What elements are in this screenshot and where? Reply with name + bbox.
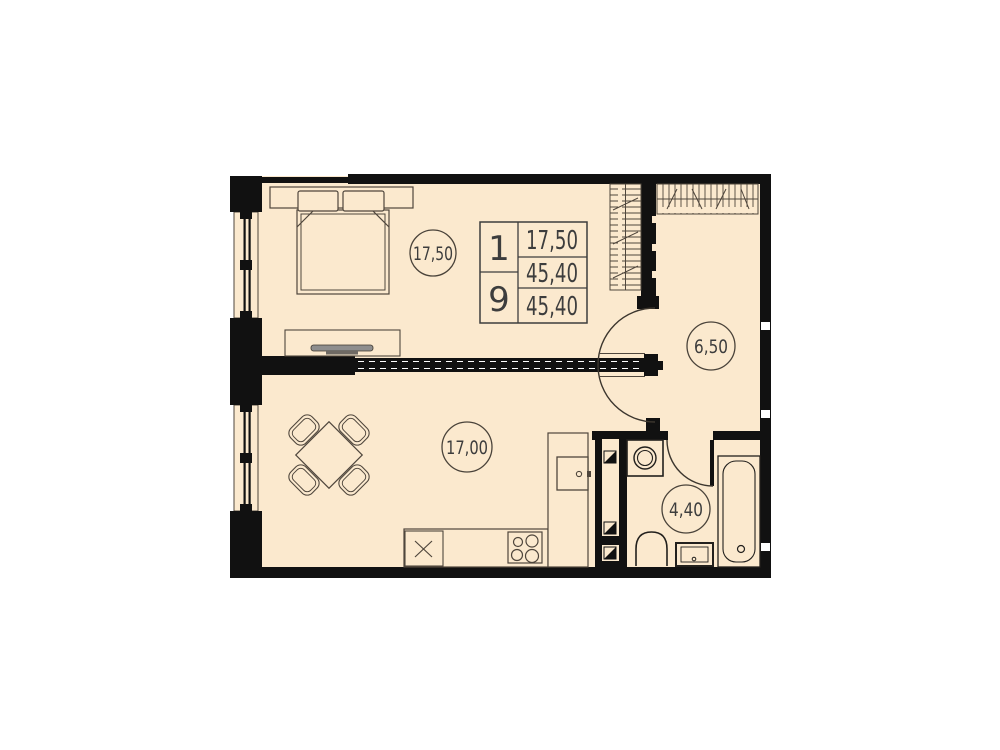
- wardrobe-bedroom: [610, 184, 641, 290]
- bed-headboard: [270, 187, 413, 208]
- dining-set: [286, 412, 372, 498]
- tv-base: [326, 351, 358, 355]
- floor-plan-canvas: 17,50 17,00 6,50 4,40 1 9 17,50 45,40 45…: [0, 0, 1000, 750]
- door-leaf: [710, 440, 714, 486]
- pillow: [343, 191, 384, 211]
- area-label-bathroom: 4,40: [669, 499, 703, 521]
- kitchen-counter-right: [548, 433, 588, 567]
- wall-bathroom-top-right: [713, 431, 760, 440]
- wall-top-thin: [258, 177, 350, 183]
- area-label-hallway: 6,50: [694, 336, 728, 358]
- area-label-living: 17,00: [446, 437, 488, 459]
- floor-plan-page: 17,50 17,00 6,50 4,40 1 9 17,50 45,40 45…: [0, 0, 1000, 750]
- info-area: 45,40: [526, 259, 578, 289]
- pillow: [298, 191, 338, 211]
- info-living-area: 17,50: [526, 226, 578, 256]
- wall-top: [348, 174, 771, 184]
- bathroom-sink: [676, 543, 713, 566]
- appliance-x-module: [405, 531, 443, 566]
- wall-right: [760, 174, 771, 578]
- door-pivot-cap: [644, 354, 658, 376]
- window-bedroom: [234, 212, 258, 318]
- bathtub: [718, 456, 760, 567]
- kitchen-sink: [557, 457, 591, 490]
- ventilation-shaft: [595, 431, 627, 567]
- info-unit-number: 9: [488, 280, 510, 320]
- info-total-area: 45,40: [526, 292, 578, 322]
- wall-bottom: [258, 567, 771, 578]
- area-label-bedroom: 17,50: [413, 243, 453, 265]
- window-living: [234, 405, 258, 511]
- wall-partition-cap: [637, 296, 659, 309]
- info-rooms-count: 1: [488, 229, 510, 269]
- wardrobe-hallway: [657, 184, 758, 214]
- tv-stand: [285, 330, 400, 356]
- wall-corner-bottom-left: [230, 511, 262, 578]
- info-table: 1 9 17,50 45,40 45,40: [480, 222, 587, 323]
- room-hallway: [656, 184, 760, 431]
- stove: [508, 532, 542, 563]
- wall-pier-left: [230, 318, 262, 405]
- wall-stub-pivot: [646, 418, 660, 433]
- tv: [311, 345, 373, 351]
- toilet: [636, 532, 667, 566]
- wall-corner-top-left: [230, 176, 262, 212]
- wall-bedroom-living: [258, 356, 355, 375]
- bed-body: [297, 210, 389, 294]
- washing-machine: [627, 440, 663, 476]
- door-leaf-band: [355, 358, 645, 372]
- wall-partition-bedroom-hall: [641, 183, 656, 300]
